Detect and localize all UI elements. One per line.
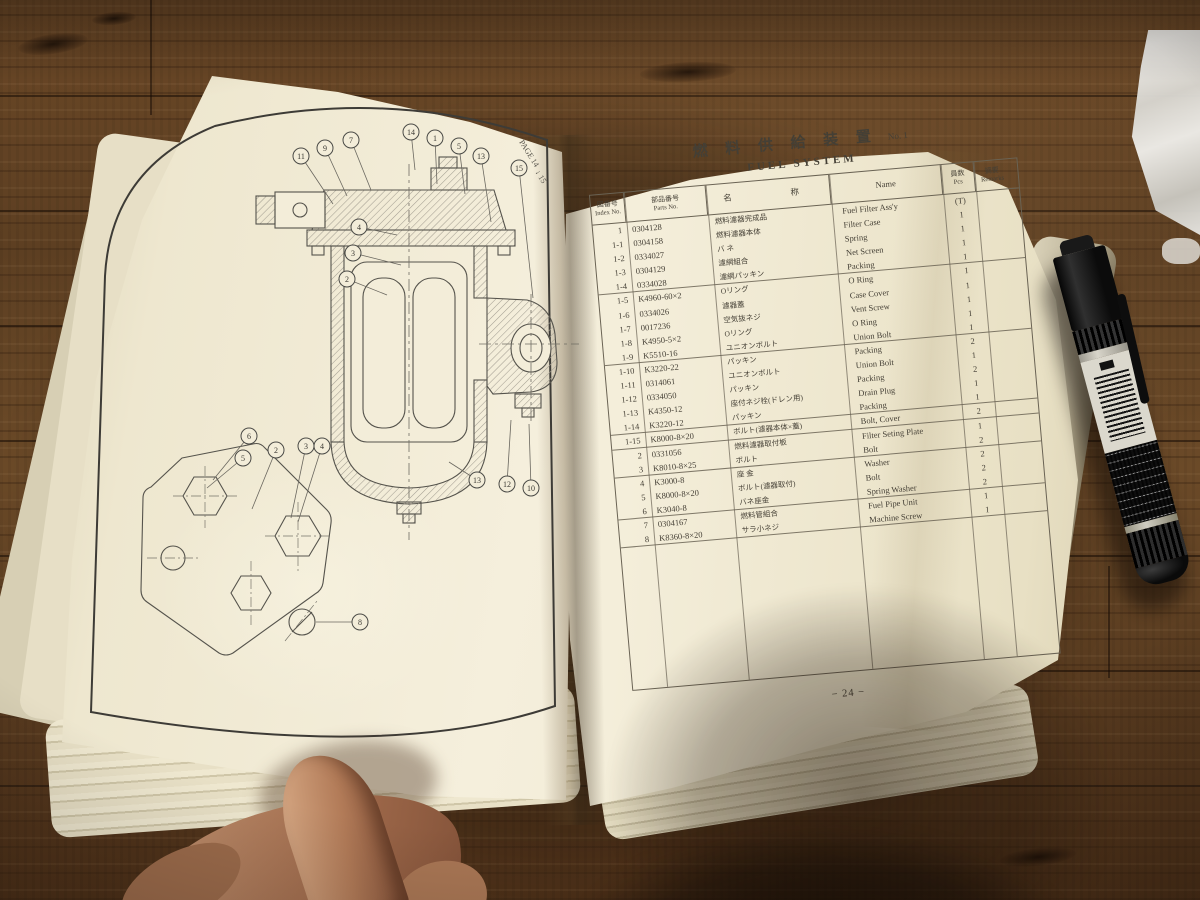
parts-table: 図番号 Index No. 部品番号 Parts No. 名 称 Name 員数… (589, 157, 1061, 691)
header-index: 図番号 Index No. (590, 193, 626, 225)
callout-number: 5 (457, 142, 461, 151)
callout-number: 11 (297, 152, 305, 161)
callout-leader (291, 446, 306, 518)
wood-plank-joint (1108, 566, 1110, 678)
header-qty: 員数 Pcs (941, 162, 976, 194)
callout-number: 2 (345, 275, 349, 284)
parts-diagram: PAGE 14 ↓ 15 119714151315432131210 65234… (55, 66, 585, 826)
right-page-content: 燃 料 供 給 装 置 No. 1 FUEL SYSTEM 図番号 Index … (585, 113, 1063, 718)
header-name-en-label: Name (830, 174, 942, 194)
mounting-plate-drawing (141, 444, 331, 656)
cell-index: 8 (620, 532, 655, 548)
callout-number: 14 (407, 128, 415, 137)
callout-number: 1 (433, 134, 437, 143)
callout-leader (519, 168, 533, 298)
header-name-jp-label: 名 称 (706, 184, 829, 205)
callout-number: 6 (247, 432, 251, 441)
callout-leader (529, 424, 531, 488)
header-index-en: Index No. (591, 208, 625, 219)
callout-number: 4 (320, 442, 324, 451)
header-remarks: 摘要 Remarks (974, 159, 1011, 191)
callout-leader (507, 420, 511, 484)
header-remarks-en: Remarks (975, 174, 1011, 185)
plastic-scrap (1162, 238, 1200, 264)
callout-number: 12 (503, 480, 511, 489)
callout-number: 13 (477, 152, 485, 161)
callout-number: 7 (349, 136, 353, 145)
callout-number: 13 (473, 476, 481, 485)
callout-number: 2 (274, 446, 278, 455)
callout-number: 10 (527, 484, 535, 493)
plate-centerlines (147, 466, 331, 641)
callout-number: 3 (304, 442, 308, 451)
cell-remarks (1003, 498, 1039, 514)
cell-qty: 1 (970, 501, 1004, 517)
callout-number: 15 (515, 164, 523, 173)
callout-number: 9 (323, 144, 327, 153)
callout-number: 3 (351, 249, 355, 258)
table-body: 1 0304128 燃料濾器完成品 Fuel Filter Ass'y (T) … (593, 188, 1048, 548)
callout-leader (252, 450, 276, 509)
header-qty-en: Pcs (942, 177, 975, 188)
photo-scene: PAGE 14 ↓ 15 119714151315432131210 65234… (0, 0, 1200, 900)
title-number: No. 1 (887, 130, 908, 142)
callout-number: 5 (241, 454, 245, 463)
callout-number: 8 (358, 618, 362, 627)
label-mark (1099, 359, 1115, 370)
diagram-annotation-line2: ↓ 15 (533, 168, 548, 185)
callout-number: 4 (357, 223, 361, 232)
